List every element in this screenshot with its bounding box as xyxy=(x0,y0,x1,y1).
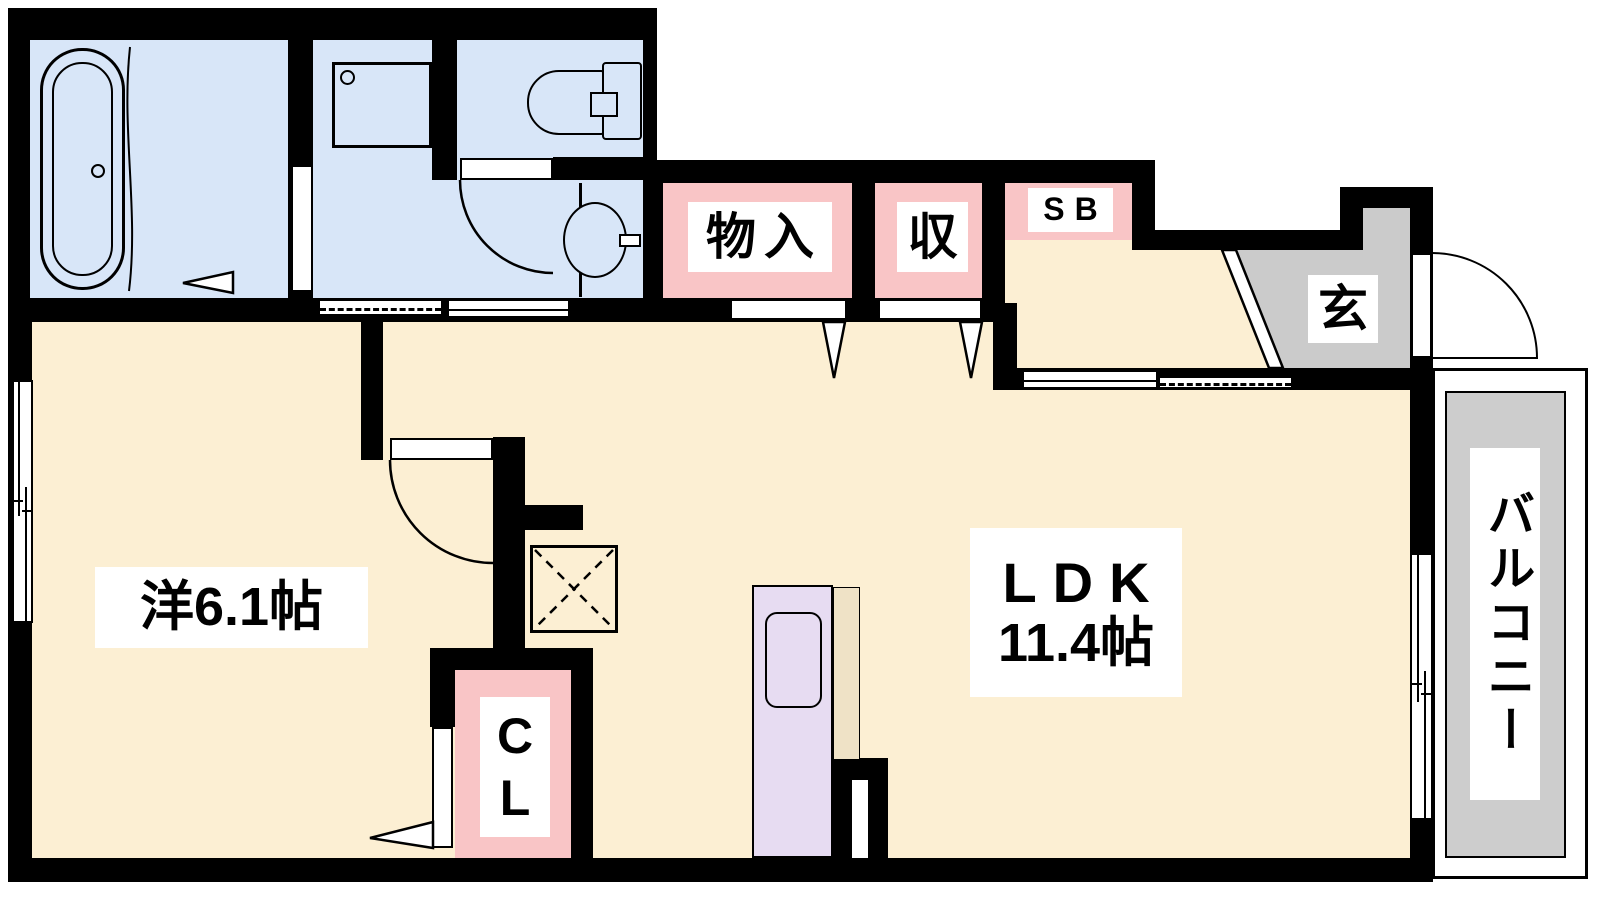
closet-label-c: C xyxy=(497,705,533,767)
wall-kitchen-leg-right xyxy=(868,780,888,858)
ldk-label-line2: 11.4帖 xyxy=(998,614,1154,673)
wall-partition-upper xyxy=(361,322,383,460)
wall-partition-stub xyxy=(525,505,583,530)
hall-bay-floor xyxy=(1005,240,1132,368)
storage1-door-lintel xyxy=(730,299,847,320)
hall-sliding-window xyxy=(1158,376,1293,389)
storage2-door-lintel xyxy=(878,299,982,320)
wall-kitchen-cap xyxy=(833,758,888,780)
floorplan: 洋6.1帖 LDK 11.4帖 物入 収 SB 玄 C L バルコニー xyxy=(0,0,1600,900)
western-room-label: 洋6.1帖 xyxy=(95,567,368,648)
wall-kitchen-leg-left xyxy=(833,780,852,858)
pipe-space-box xyxy=(530,545,618,633)
wall-partition-lower xyxy=(493,437,525,650)
storage1-label: 物入 xyxy=(688,202,832,272)
west-window xyxy=(12,380,33,623)
shoebox-label: SB xyxy=(1028,188,1113,232)
entrance-label: 玄 xyxy=(1308,275,1378,343)
washbasin-tap xyxy=(619,234,641,247)
washing-machine-drain xyxy=(340,70,355,85)
kitchen-counter-edge xyxy=(833,587,860,760)
storage2-label: 収 xyxy=(897,202,968,272)
hall-window xyxy=(1022,370,1158,389)
wall-closet-east xyxy=(571,648,593,860)
closet-label: C L xyxy=(480,697,550,837)
washroom-pocket-door xyxy=(447,299,570,318)
room-door-leaf xyxy=(390,438,493,460)
kitchen-sink xyxy=(765,612,822,708)
toilet-door-leaf xyxy=(460,158,553,180)
balcony-window xyxy=(1410,553,1433,820)
closet-door-leaf xyxy=(432,727,453,848)
ldk-label-line1: LDK xyxy=(986,552,1165,614)
wall-hall-corner xyxy=(993,303,1017,390)
wall-toilet-south xyxy=(553,157,643,180)
bathtub-drain xyxy=(91,164,105,178)
wall-shoebox-east xyxy=(1132,160,1155,252)
front-door-arc xyxy=(1432,253,1537,358)
ldk-label: LDK 11.4帖 xyxy=(970,528,1182,697)
wall-closet-west xyxy=(430,648,455,727)
balcony-label: バルコニー xyxy=(1470,448,1540,800)
washroom-sliding-door xyxy=(318,299,443,316)
washbasin xyxy=(563,202,627,278)
front-door-leaf xyxy=(1411,253,1432,358)
bath-door-leaf xyxy=(291,165,313,292)
wall-toilet-west xyxy=(432,40,457,180)
closet-label-l: L xyxy=(500,767,531,829)
toilet-seat-hinge xyxy=(590,92,618,117)
kitchen-wall-slot xyxy=(852,780,868,858)
